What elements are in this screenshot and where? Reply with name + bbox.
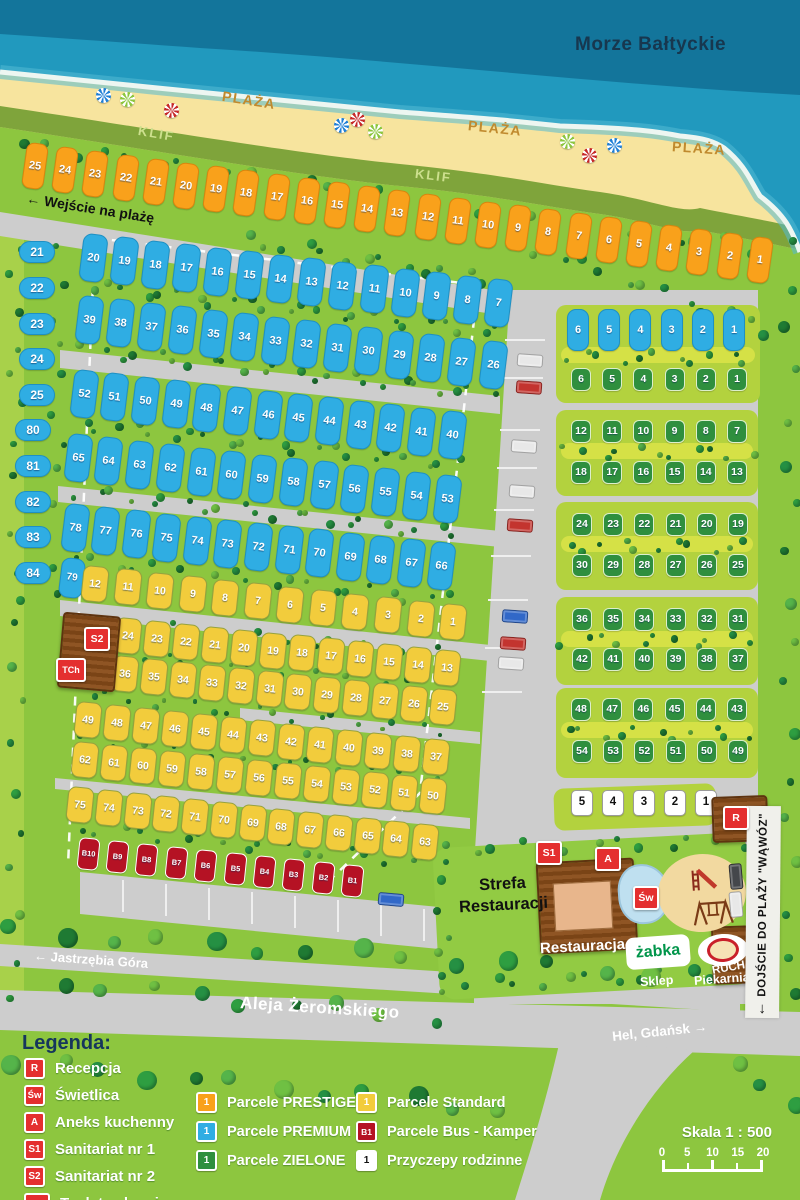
legend-label: Toaleta chemiczna bbox=[60, 1195, 192, 1200]
beach-label-1: PLAŻA bbox=[221, 88, 277, 112]
legend-item: S2Sanitariat nr 2 bbox=[24, 1166, 192, 1187]
legend-item: 1Parcele PREMIUM bbox=[196, 1121, 356, 1142]
scale-tick-label: 10 bbox=[706, 1147, 719, 1159]
scale-tick-label: 5 bbox=[684, 1147, 690, 1159]
shop-label: Sklep bbox=[640, 973, 674, 989]
legend-label: Parcele PREMIUM bbox=[227, 1124, 351, 1140]
legend-facilities: RRecepcjaŚwŚwietlicaAAneks kuchennyS1San… bbox=[24, 1058, 192, 1200]
beach-entrance-label: ← Wejście na plażę bbox=[26, 190, 156, 226]
direction-west-label: ← Jastrzębia Góra bbox=[34, 948, 149, 971]
legend-item: 1Parcele PRESTIGE bbox=[196, 1092, 356, 1113]
legend-label: Parcele Standard bbox=[387, 1095, 505, 1111]
arrow-left-icon: ← bbox=[34, 948, 52, 964]
restaurant-zone-label: Strefa Restauracji bbox=[439, 871, 567, 919]
legend-label: Sanitariat nr 1 bbox=[55, 1141, 155, 1158]
legend-icon-1: 1 bbox=[356, 1150, 377, 1171]
legend-icon-Św: Św bbox=[24, 1085, 45, 1106]
sanitary2-marker: S2 bbox=[84, 627, 110, 651]
legend-icon-R: R bbox=[24, 1058, 45, 1079]
legend-types-b: 1Parcele StandardB1Parcele Bus - Kamper1… bbox=[356, 1092, 537, 1171]
chem-toilet-marker: TCh bbox=[56, 658, 86, 682]
direction-east-label: Hel, Gdańsk → bbox=[611, 1019, 707, 1044]
restaurant-label: Restauracja bbox=[540, 936, 626, 957]
legend-icon-1: 1 bbox=[196, 1121, 217, 1142]
legend-item: 1Parcele ZIELONE bbox=[196, 1150, 356, 1171]
cliff-label-2: KLIF bbox=[414, 166, 452, 185]
common-room-marker: Św bbox=[633, 886, 659, 910]
arrow-right-icon: → bbox=[689, 1019, 708, 1036]
legend-icon-1: 1 bbox=[356, 1092, 377, 1113]
cliff-label-1: KLIF bbox=[137, 123, 176, 144]
reception-marker: R bbox=[723, 806, 749, 830]
legend-label: Aneks kuchenny bbox=[55, 1114, 174, 1131]
legend-item: 1Przyczepy rodzinne bbox=[356, 1150, 537, 1171]
legend-label: Parcele ZIELONE bbox=[227, 1153, 345, 1169]
beach-label-2: PLAŻA bbox=[467, 117, 523, 139]
road-name-label: Aleja Żeromskiego bbox=[240, 993, 401, 1023]
sanitary1-marker: S1 bbox=[536, 841, 562, 865]
scale-label: Skala 1 : 500 bbox=[652, 1124, 778, 1141]
legend-icon-S1: S1 bbox=[24, 1139, 45, 1160]
legend-icon-1: 1 bbox=[196, 1092, 217, 1113]
legend-item: ŚwŚwietlica bbox=[24, 1085, 192, 1106]
legend-item: RRecepcja bbox=[24, 1058, 192, 1079]
legend-label: Parcele PRESTIGE bbox=[227, 1095, 356, 1111]
legend-icon-TCh: TCh bbox=[24, 1193, 50, 1200]
legend-label: Sanitariat nr 2 bbox=[55, 1168, 155, 1185]
campsite-map: 2524232221201918171615141312111098765432… bbox=[0, 0, 800, 1200]
legend-label: Recepcja bbox=[55, 1060, 121, 1077]
kitchen-marker: A bbox=[595, 847, 621, 871]
shop-logo: żabka bbox=[625, 934, 691, 970]
legend-icon-1: 1 bbox=[196, 1150, 217, 1171]
legend-icon-B1: B1 bbox=[356, 1121, 377, 1142]
legend-item: S1Sanitariat nr 1 bbox=[24, 1139, 192, 1160]
legend-label: Przyczepy rodzinne bbox=[387, 1153, 522, 1169]
scale-tick-labels: 05101520 bbox=[652, 1147, 778, 1161]
legend-item: AAneks kuchenny bbox=[24, 1112, 192, 1133]
legend-label: Parcele Bus - Kamper bbox=[387, 1124, 537, 1140]
sea-label: Morze Bałtyckie bbox=[575, 34, 726, 56]
legend-item: 1Parcele Standard bbox=[356, 1092, 537, 1113]
legend-label: Świetlica bbox=[55, 1087, 119, 1104]
beach-label-3: PLAŻA bbox=[672, 138, 727, 158]
legend-item: TChToaleta chemiczna bbox=[24, 1193, 192, 1200]
scale-tick-label: 15 bbox=[731, 1147, 744, 1159]
legend-icon-A: A bbox=[24, 1112, 45, 1133]
legend-title: Legenda: bbox=[22, 1032, 111, 1055]
legend-item: B1Parcele Bus - Kamper bbox=[356, 1121, 537, 1142]
scale-bar bbox=[662, 1161, 763, 1172]
arrow-down-icon: ↓ bbox=[758, 1001, 766, 1016]
scale-tick-label: 20 bbox=[757, 1147, 770, 1159]
scale-tick-label: 0 bbox=[659, 1147, 665, 1159]
legend-icon-S2: S2 bbox=[24, 1166, 45, 1187]
beach-access-strip: DOJŚCIE DO PLAŻY "WĄWÓZ" ↓ bbox=[745, 806, 781, 1018]
legend-types-a: 1Parcele PRESTIGE1Parcele PREMIUM1Parcel… bbox=[196, 1092, 356, 1171]
map-scale: Skala 1 : 500 05101520 bbox=[652, 1124, 778, 1172]
beach-access-label: DOJŚCIE DO PLAŻY "WĄWÓZ" bbox=[756, 813, 770, 997]
